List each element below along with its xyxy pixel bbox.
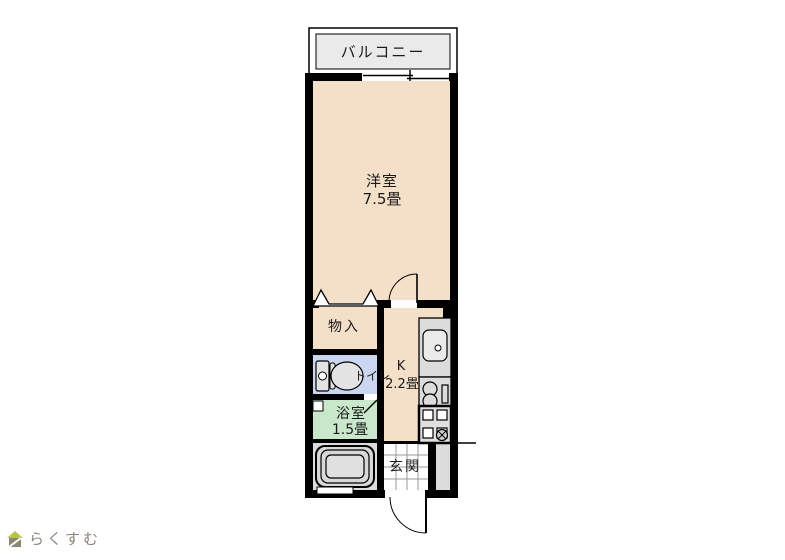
wall-kitchen-stub <box>443 300 451 318</box>
kitchen-label: K <box>397 359 406 374</box>
wall-entrance-stub <box>428 443 436 498</box>
wall-left <box>305 73 313 498</box>
wall-bath-tub <box>313 439 377 443</box>
main-room-size: 7.5畳 <box>363 190 402 208</box>
storage-label: 物入 <box>328 319 360 335</box>
rakusumu-logo: らくすむ <box>7 529 101 549</box>
washing-machine-pan-icon <box>419 406 451 443</box>
logo-text: らくすむ <box>29 529 101 549</box>
balcony-label: バルコニー <box>341 43 426 61</box>
floorplan-canvas: バルコニー <box>0 0 785 556</box>
wall-vertical-divider <box>377 300 384 498</box>
kitchen-sink-icon <box>419 318 451 377</box>
wall-mid-right <box>417 300 458 308</box>
front-door-icon <box>385 490 426 533</box>
stove-icon <box>419 377 451 408</box>
bathroom-label: 浴室 <box>336 405 366 422</box>
kitchen-size: 2.2畳 <box>385 377 419 392</box>
entrance-side-area <box>436 444 451 490</box>
bathtub-icon <box>316 446 374 494</box>
main-room-label: 洋室 <box>366 172 398 190</box>
wall-toilet-bath <box>313 394 364 400</box>
balcony: バルコニー <box>309 28 457 75</box>
house-logo-icon <box>7 530 24 548</box>
bath-corner-box <box>313 401 323 411</box>
bathroom-size: 1.5畳 <box>332 422 368 438</box>
wall-bottom-right <box>425 490 458 498</box>
floorplan-drawing: バルコニー <box>0 0 785 556</box>
wall-storage-toilet <box>313 349 377 355</box>
entrance-label: 玄関 <box>389 458 421 475</box>
